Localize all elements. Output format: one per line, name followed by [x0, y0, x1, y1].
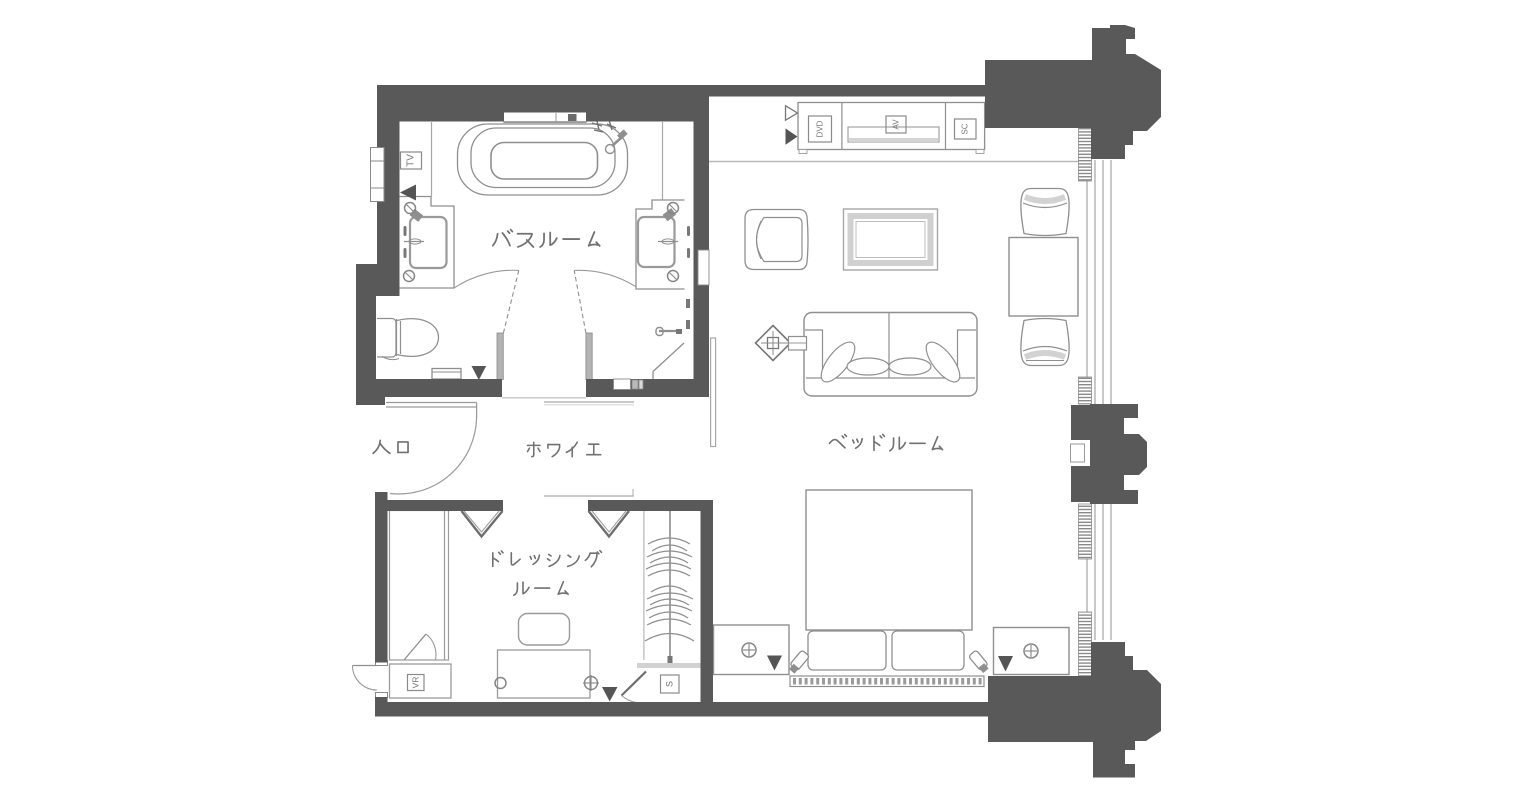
svg-text:S: S: [665, 681, 675, 687]
svg-text:VR: VR: [411, 677, 421, 689]
svg-text:TV: TV: [406, 154, 417, 167]
svg-text:SC: SC: [961, 123, 970, 134]
svg-text:DVD: DVD: [816, 120, 825, 137]
svg-text:AV: AV: [892, 119, 901, 130]
